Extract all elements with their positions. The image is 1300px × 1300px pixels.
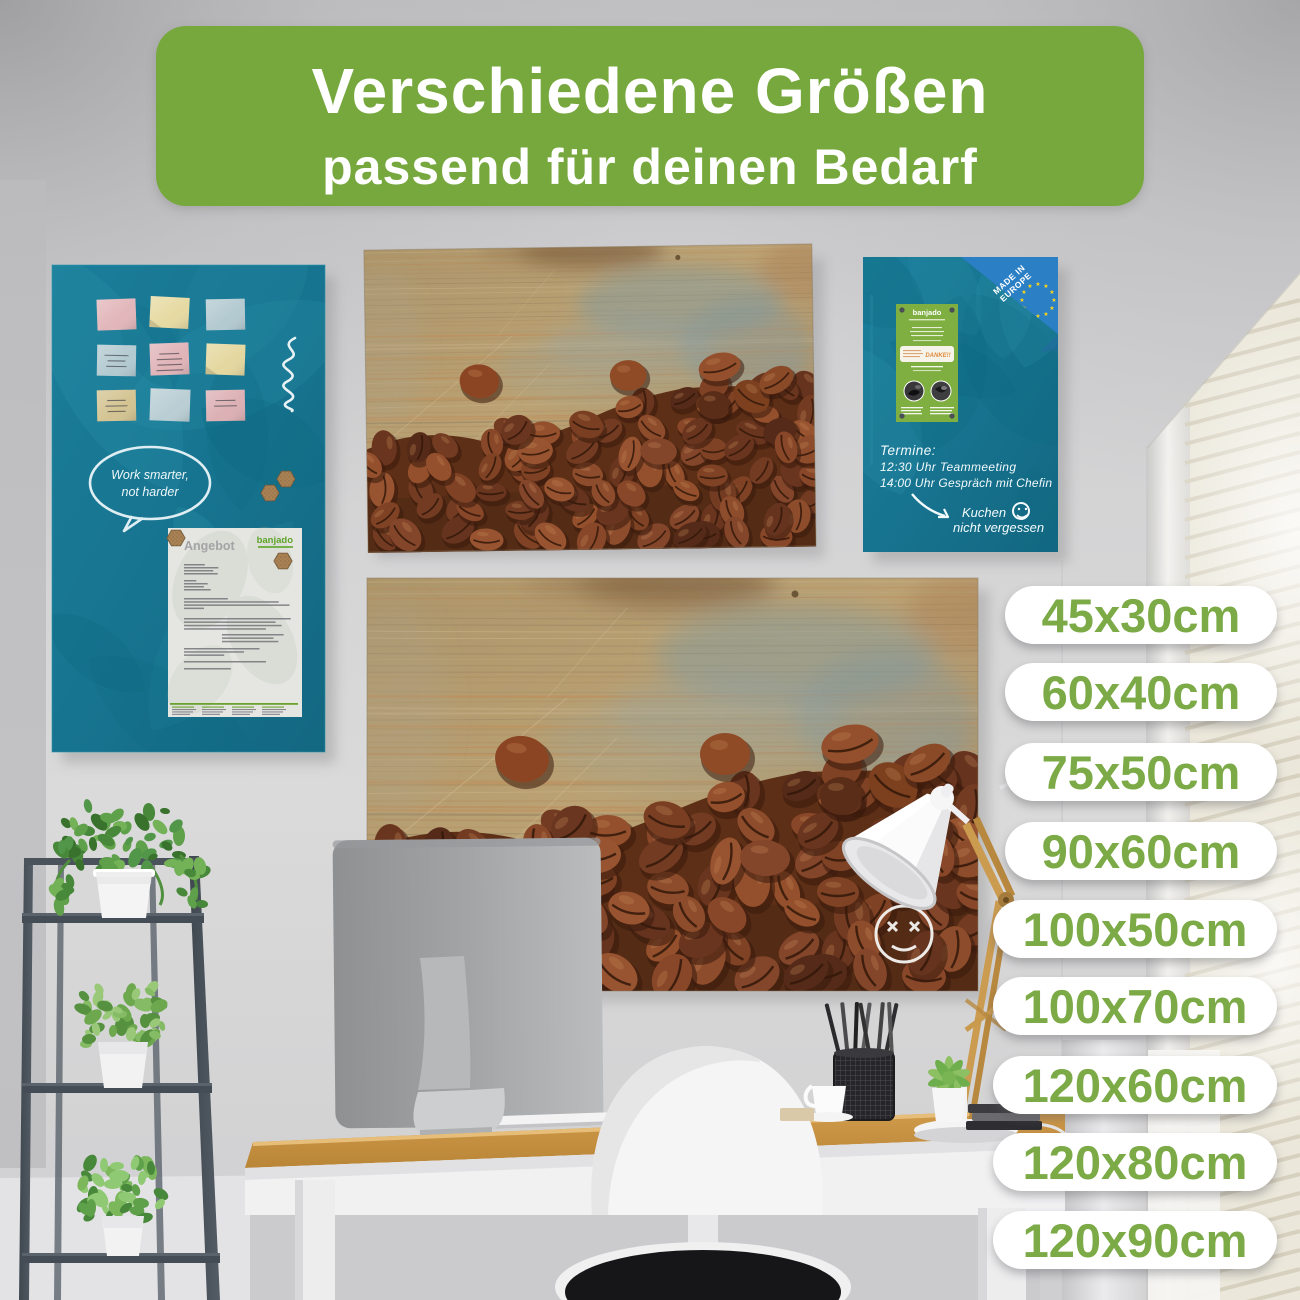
svg-text:12:30 Uhr Teammeeting: 12:30 Uhr Teammeeting: [880, 460, 1016, 474]
svg-text:★: ★: [1035, 281, 1040, 288]
svg-text:DANKE!!: DANKE!!: [925, 353, 950, 359]
svg-text:★: ★: [1043, 311, 1048, 318]
svg-text:Termine:: Termine:: [880, 443, 936, 458]
svg-text:★: ★: [1051, 297, 1056, 304]
svg-text:Work smarter,: Work smarter,: [111, 468, 189, 482]
svg-text:★: ★: [1027, 283, 1032, 290]
svg-text:Kuchen: Kuchen: [962, 505, 1006, 520]
svg-text:banjado: banjado: [913, 308, 942, 317]
svg-text:★: ★: [1049, 289, 1054, 296]
svg-text:★: ★: [1019, 297, 1024, 304]
svg-text:14:00 Uhr Gespräch mit Chefin: 14:00 Uhr Gespräch mit Chefin: [880, 476, 1052, 490]
svg-text:★: ★: [1043, 283, 1048, 290]
svg-text:★: ★: [1049, 305, 1054, 312]
svg-text:banjado: banjado: [257, 535, 294, 546]
svg-text:not harder: not harder: [122, 485, 180, 499]
svg-text:★: ★: [1021, 289, 1026, 296]
svg-text:nicht vergessen: nicht vergessen: [953, 520, 1044, 535]
svg-text:Angebot: Angebot: [184, 539, 236, 553]
